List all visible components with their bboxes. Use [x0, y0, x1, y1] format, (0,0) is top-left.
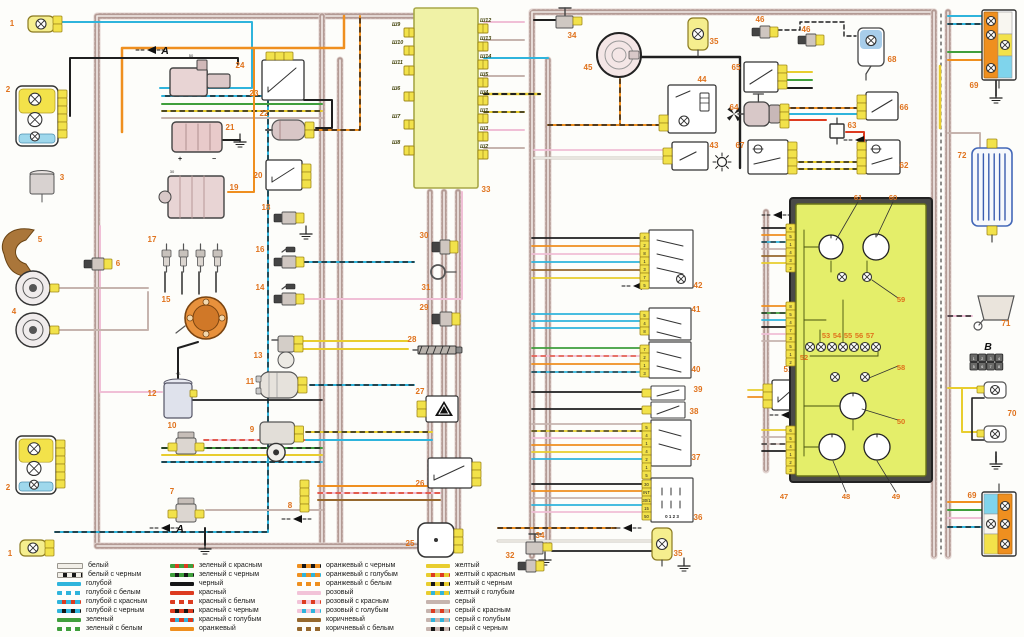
svg-text:4: 4: [998, 357, 1000, 361]
component-72: 72: [958, 139, 1012, 242]
svg-text:Ш5: Ш5: [480, 72, 489, 78]
svg-text:15: 15: [644, 506, 649, 511]
svg-text:68: 68: [888, 55, 897, 64]
component-64: 64: [727, 94, 789, 128]
svg-text:6: 6: [981, 365, 983, 369]
svg-text:Ш2: Ш2: [480, 144, 488, 150]
legend-item: розовый: [297, 589, 426, 597]
wire-color-swatch: [170, 591, 194, 595]
component-25: 25: [406, 523, 463, 557]
svg-text:4: 4: [12, 307, 17, 316]
wire-color-swatch: [426, 564, 450, 568]
wire-color-label: розовый с голубым: [326, 607, 388, 615]
svg-text:49: 49: [892, 492, 900, 501]
svg-text:7: 7: [170, 487, 175, 496]
component-44: 44: [659, 75, 716, 133]
wire-color-label: зеленый: [86, 616, 114, 624]
svg-text:54: 54: [833, 331, 842, 340]
svg-text:А: А: [160, 45, 169, 57]
legend-item: зеленый с черным: [170, 571, 297, 579]
wire-color-label: желтый с голубым: [455, 589, 515, 597]
svg-text:50: 50: [644, 514, 649, 519]
component-17: 17: [148, 235, 222, 272]
svg-text:24: 24: [236, 61, 245, 70]
wire-color-swatch: [426, 618, 450, 622]
svg-text:8: 8: [288, 501, 293, 510]
svg-text:15: 15: [162, 295, 171, 304]
svg-text:Ш6: Ш6: [392, 86, 401, 92]
svg-text:0 1 2 3: 0 1 2 3: [665, 514, 679, 519]
legend-item: голубой с красным: [57, 598, 170, 606]
legend-item: серый с красным: [426, 607, 526, 615]
wire-color-swatch: [57, 563, 83, 569]
svg-text:45: 45: [584, 63, 593, 72]
wire-color-swatch: [57, 600, 81, 604]
legend-item: красный с черным: [170, 607, 297, 615]
svg-text:60: 60: [889, 193, 897, 202]
component-69: 69: [968, 484, 1016, 556]
svg-text:+: +: [178, 156, 182, 163]
svg-text:Ш8: Ш8: [392, 140, 400, 146]
svg-text:30: 30: [420, 231, 429, 240]
svg-text:44: 44: [698, 75, 707, 84]
svg-text:Ш12: Ш12: [480, 18, 491, 24]
legend-item: оранжевый: [170, 625, 297, 633]
svg-text:34: 34: [568, 31, 577, 40]
svg-text:INT: INT: [643, 490, 650, 495]
component-23: 23: [250, 52, 304, 100]
wire-color-swatch: [57, 582, 81, 586]
component-2: 2: [6, 85, 67, 146]
wire-color-swatch: [297, 573, 321, 577]
instrument-cluster-47: 6514328547351265412361605958504849475253…: [780, 193, 932, 501]
svg-text:+Б: +Б: [176, 371, 181, 376]
wire-color-swatch: [297, 600, 321, 604]
component-27: 27: [416, 387, 458, 422]
component-40: 721340: [640, 342, 701, 378]
svg-text:69: 69: [970, 81, 979, 90]
component-28: 28: [408, 335, 462, 354]
svg-text:52: 52: [800, 353, 808, 362]
legend-item: красный с голубым: [170, 616, 297, 624]
wire-color-legend: белыйбелый с чернымголубойголубой с белы…: [57, 562, 526, 633]
svg-text:2: 2: [6, 85, 11, 94]
wire-color-label: красный с черным: [199, 607, 259, 615]
wire-color-swatch: [57, 618, 81, 622]
svg-text:10: 10: [168, 421, 177, 430]
svg-text:61: 61: [854, 193, 862, 202]
svg-text:12: 12: [148, 389, 157, 398]
svg-text:46: 46: [802, 25, 811, 34]
legend-item: зеленый с красным: [170, 562, 297, 570]
wire-color-swatch: [426, 600, 450, 604]
wire-color-label: оранжевый с черным: [326, 562, 395, 570]
wire-color-label: белый с черным: [88, 571, 141, 579]
wire-color-label: серый: [455, 598, 475, 606]
component-67: 67: [736, 140, 797, 174]
svg-text:9: 9: [250, 425, 255, 434]
wire-color-swatch: [170, 609, 194, 613]
legend-item: розовый с красным: [297, 598, 426, 606]
legend-item: серый с черным: [426, 625, 526, 633]
wire-color-label: голубой с белым: [86, 589, 141, 597]
wire-color-swatch: [170, 564, 194, 568]
wire-color-label: голубой с черным: [86, 607, 144, 615]
component-10: 10: [168, 421, 204, 454]
wiring-diagram-page: 1235465024+−213019232220181715+Б12161413…: [0, 0, 1024, 637]
svg-text:5: 5: [38, 235, 43, 244]
svg-text:3: 3: [60, 173, 65, 182]
component-68: 68: [858, 28, 897, 80]
svg-text:Ш3: Ш3: [480, 126, 488, 132]
component-5: 5: [2, 229, 42, 277]
svg-text:18: 18: [262, 203, 271, 212]
wire-color-swatch: [170, 582, 194, 586]
legend-column: желтыйжелтый с краснымжелтый с чернымжел…: [426, 562, 526, 633]
svg-text:63: 63: [848, 121, 857, 130]
svg-text:55: 55: [844, 331, 852, 340]
component-16: 16: [256, 245, 304, 268]
legend-item: желтый: [426, 562, 526, 570]
svg-text:62: 62: [900, 161, 909, 170]
svg-text:37: 37: [692, 453, 701, 462]
wire-color-label: серый с голубым: [455, 616, 510, 624]
wire-color-swatch: [426, 582, 450, 586]
svg-text:42: 42: [694, 281, 703, 290]
component-24: 5024: [170, 53, 245, 96]
svg-text:31: 31: [422, 283, 431, 292]
wire-color-label: оранжевый: [199, 625, 236, 633]
component-38: 38: [642, 402, 699, 418]
component-46: 46: [798, 25, 824, 46]
svg-text:34: 34: [536, 531, 545, 540]
svg-text:13: 13: [254, 351, 263, 360]
legend-column: белыйбелый с чернымголубойголубой с белы…: [57, 562, 170, 633]
wire-color-label: зеленый с черным: [199, 571, 259, 579]
svg-text:Ш11: Ш11: [392, 60, 403, 66]
component-70: 70: [977, 382, 1017, 442]
wire-color-swatch: [426, 591, 450, 595]
svg-text:Ш9: Ш9: [392, 22, 400, 28]
wire-color-swatch: [297, 582, 321, 586]
wire-color-label: серый с красным: [455, 607, 511, 615]
svg-text:11: 11: [246, 377, 255, 386]
component-12: +Б12: [148, 371, 197, 418]
svg-text:2: 2: [6, 483, 11, 492]
svg-text:48: 48: [842, 492, 850, 501]
component-36: 30INT30/115500 1 2 336: [642, 478, 703, 522]
svg-text:Ш4: Ш4: [480, 90, 488, 96]
wire-color-label: черный: [199, 580, 223, 588]
legend-item: белый с черным: [57, 571, 170, 579]
svg-text:21: 21: [226, 123, 235, 132]
svg-text:53: 53: [822, 331, 830, 340]
svg-text:20: 20: [254, 171, 263, 180]
legend-item: серый: [426, 598, 526, 606]
wire-color-swatch: [297, 618, 321, 622]
svg-text:41: 41: [692, 305, 701, 314]
svg-text:30: 30: [170, 169, 175, 174]
wiring-diagram-canvas: 1235465024+−213019232220181715+Б12161413…: [0, 0, 1024, 637]
wire-color-label: розовый: [326, 589, 353, 597]
component-conn_grid: 12345678: [970, 354, 1003, 370]
legend-column: оранжевый с черныморанжевый с голубымора…: [297, 562, 426, 633]
wire-color-swatch: [170, 573, 194, 577]
svg-text:43: 43: [710, 141, 719, 150]
svg-text:1: 1: [8, 549, 13, 558]
svg-text:50: 50: [189, 53, 194, 58]
svg-text:7: 7: [990, 365, 992, 369]
svg-text:28: 28: [408, 335, 417, 344]
legend-item: красный с белым: [170, 598, 297, 606]
svg-text:39: 39: [694, 385, 703, 394]
wire-color-label: серый с черным: [455, 625, 508, 633]
component-71: 71: [974, 296, 1014, 330]
wire-color-swatch: [426, 627, 450, 631]
wire-color-swatch: [297, 591, 321, 595]
svg-text:8: 8: [998, 365, 1000, 369]
svg-text:27: 27: [416, 387, 425, 396]
wire-color-label: голубой: [86, 580, 112, 588]
component-37: 541421537: [642, 420, 701, 479]
component-14: 14: [256, 283, 304, 305]
svg-text:59: 59: [897, 295, 905, 304]
legend-item: коричневый с белым: [297, 625, 426, 633]
wire-color-swatch: [170, 600, 194, 604]
svg-text:1: 1: [10, 19, 15, 28]
svg-text:46: 46: [756, 15, 765, 24]
svg-text:2: 2: [981, 357, 983, 361]
svg-text:56: 56: [855, 331, 863, 340]
component-29: 29: [420, 303, 460, 326]
svg-text:71: 71: [1002, 319, 1011, 328]
svg-text:58: 58: [897, 363, 905, 372]
legend-column: зеленый с краснымзеленый с чернымчерныйк…: [170, 562, 297, 633]
component-2: 2: [6, 436, 65, 494]
svg-text:Ш1: Ш1: [480, 108, 488, 114]
svg-text:30: 30: [644, 482, 649, 487]
svg-text:50: 50: [897, 417, 905, 426]
wire-color-label: желтый с красным: [455, 571, 515, 579]
wire-color-label: красный: [199, 589, 226, 597]
svg-text:Ш7: Ш7: [392, 114, 401, 120]
svg-text:70: 70: [1008, 409, 1017, 418]
svg-text:−: −: [212, 156, 216, 163]
component-46: 46: [752, 15, 778, 38]
component-35: 35: [652, 528, 683, 566]
svg-text:23: 23: [250, 89, 259, 98]
component-7: 7: [168, 487, 204, 522]
component-21: +−21: [172, 122, 235, 163]
wire-color-swatch: [57, 627, 81, 631]
legend-item: красный: [170, 589, 297, 597]
legend-item: оранжевый с голубым: [297, 571, 426, 579]
legend-item: голубой с белым: [57, 589, 170, 597]
svg-text:35: 35: [710, 37, 719, 46]
legend-item: черный: [170, 580, 297, 588]
svg-text:6: 6: [116, 259, 121, 268]
legend-item: оранжевый с белым: [297, 580, 426, 588]
component-41: 54841: [640, 305, 701, 340]
svg-text:26: 26: [416, 479, 425, 488]
legend-item: коричневый: [297, 616, 426, 624]
svg-text:В: В: [984, 341, 992, 353]
svg-text:36: 36: [694, 513, 703, 522]
component-6: 6: [84, 258, 121, 270]
svg-text:25: 25: [406, 539, 415, 548]
component-3: 3: [30, 171, 65, 203]
svg-text:38: 38: [690, 407, 699, 416]
svg-text:65: 65: [732, 63, 741, 72]
wire-color-label: коричневый: [326, 616, 365, 624]
wire-color-swatch: [426, 573, 450, 577]
component-62: 62: [857, 140, 909, 174]
wire-color-label: оранжевый с голубым: [326, 571, 398, 579]
svg-text:33: 33: [482, 185, 491, 194]
legend-item: зеленый с белым: [57, 625, 170, 633]
component-19: 3019: [159, 169, 239, 218]
svg-text:30/1: 30/1: [642, 498, 651, 503]
component-4: 4: [12, 271, 59, 347]
component-26: 26: [416, 458, 481, 488]
wire-color-label: желтый: [455, 562, 480, 570]
legend-item: желтый с голубым: [426, 589, 526, 597]
legend-item: розовый с голубым: [297, 607, 426, 615]
diagram-svg: 1235465024+−213019232220181715+Б12161413…: [0, 0, 1024, 637]
component-15: 15: [162, 295, 227, 339]
svg-text:Ш13: Ш13: [480, 36, 491, 42]
svg-text:1: 1: [973, 357, 975, 361]
wire-color-swatch: [297, 627, 321, 631]
svg-text:72: 72: [958, 151, 967, 160]
legend-item: голубой с черным: [57, 607, 170, 615]
component-39: 39: [642, 385, 703, 400]
wire-color-swatch: [297, 564, 321, 568]
component-45: 45: [584, 33, 641, 77]
wire-color-swatch: [426, 609, 450, 613]
component-66: 66: [857, 92, 909, 120]
svg-text:Ш14: Ш14: [480, 54, 491, 60]
legend-item: голубой: [57, 580, 170, 588]
wire-color-label: оранжевый с белым: [326, 580, 392, 588]
legend-item: оранжевый с черным: [297, 562, 426, 570]
component-20: 20: [254, 160, 311, 190]
svg-text:19: 19: [230, 183, 239, 192]
mounting-block-33: Ш9Ш10Ш11Ш6Ш7Ш8Ш12Ш13Ш14Ш5Ш4Ш1Ш3Ш233: [392, 8, 491, 194]
svg-text:35: 35: [674, 549, 683, 558]
wire-color-label: зеленый с белым: [86, 625, 143, 633]
svg-text:22: 22: [260, 109, 269, 118]
wire-color-label: розовый с красным: [326, 598, 389, 606]
component-43: 43: [663, 141, 731, 171]
legend-item: белый: [57, 562, 170, 570]
component-30: 30: [420, 231, 458, 254]
legend-item: зеленый: [57, 616, 170, 624]
svg-text:47: 47: [780, 492, 788, 501]
svg-text:32: 32: [506, 551, 515, 560]
wire-color-swatch: [57, 591, 81, 595]
svg-text:66: 66: [900, 103, 909, 112]
svg-text:Ш10: Ш10: [392, 40, 403, 46]
svg-text:29: 29: [420, 303, 429, 312]
svg-text:67: 67: [736, 141, 745, 150]
svg-text:57: 57: [866, 331, 874, 340]
wire-color-label: желтый с черным: [455, 580, 512, 588]
wire-color-label: коричневый с белым: [326, 625, 394, 633]
wire-color-label: красный с голубым: [199, 616, 261, 624]
svg-text:16: 16: [256, 245, 265, 254]
wire-color-swatch: [170, 618, 194, 622]
wire-color-label: белый: [88, 562, 109, 570]
svg-text:40: 40: [692, 365, 701, 374]
wire-color-label: зеленый с красным: [199, 562, 262, 570]
component-8: 8: [288, 480, 309, 512]
component-42: 428137542: [640, 230, 703, 290]
component-1: 1: [8, 540, 54, 558]
svg-text:64: 64: [730, 103, 739, 112]
wire-color-label: красный с белым: [199, 598, 255, 606]
legend-item: желтый с красным: [426, 571, 526, 579]
wire-color-swatch: [297, 609, 321, 613]
svg-text:А: А: [175, 523, 184, 535]
component-13: 13: [254, 336, 303, 368]
svg-text:17: 17: [148, 235, 157, 244]
component-35: 35: [688, 18, 719, 56]
wire-color-swatch: [57, 572, 83, 578]
component-1: 1: [10, 16, 62, 32]
component-11: 11: [246, 372, 307, 398]
svg-text:14: 14: [256, 283, 265, 292]
svg-text:3: 3: [990, 357, 992, 361]
wire-color-swatch: [57, 609, 81, 613]
svg-text:69: 69: [968, 491, 977, 500]
legend-item: серый с голубым: [426, 616, 526, 624]
wire-color-label: голубой с красным: [86, 598, 147, 606]
svg-text:5: 5: [973, 365, 975, 369]
legend-item: желтый с черным: [426, 580, 526, 588]
wire-color-swatch: [170, 627, 194, 631]
component-69: 69: [970, 10, 1016, 90]
